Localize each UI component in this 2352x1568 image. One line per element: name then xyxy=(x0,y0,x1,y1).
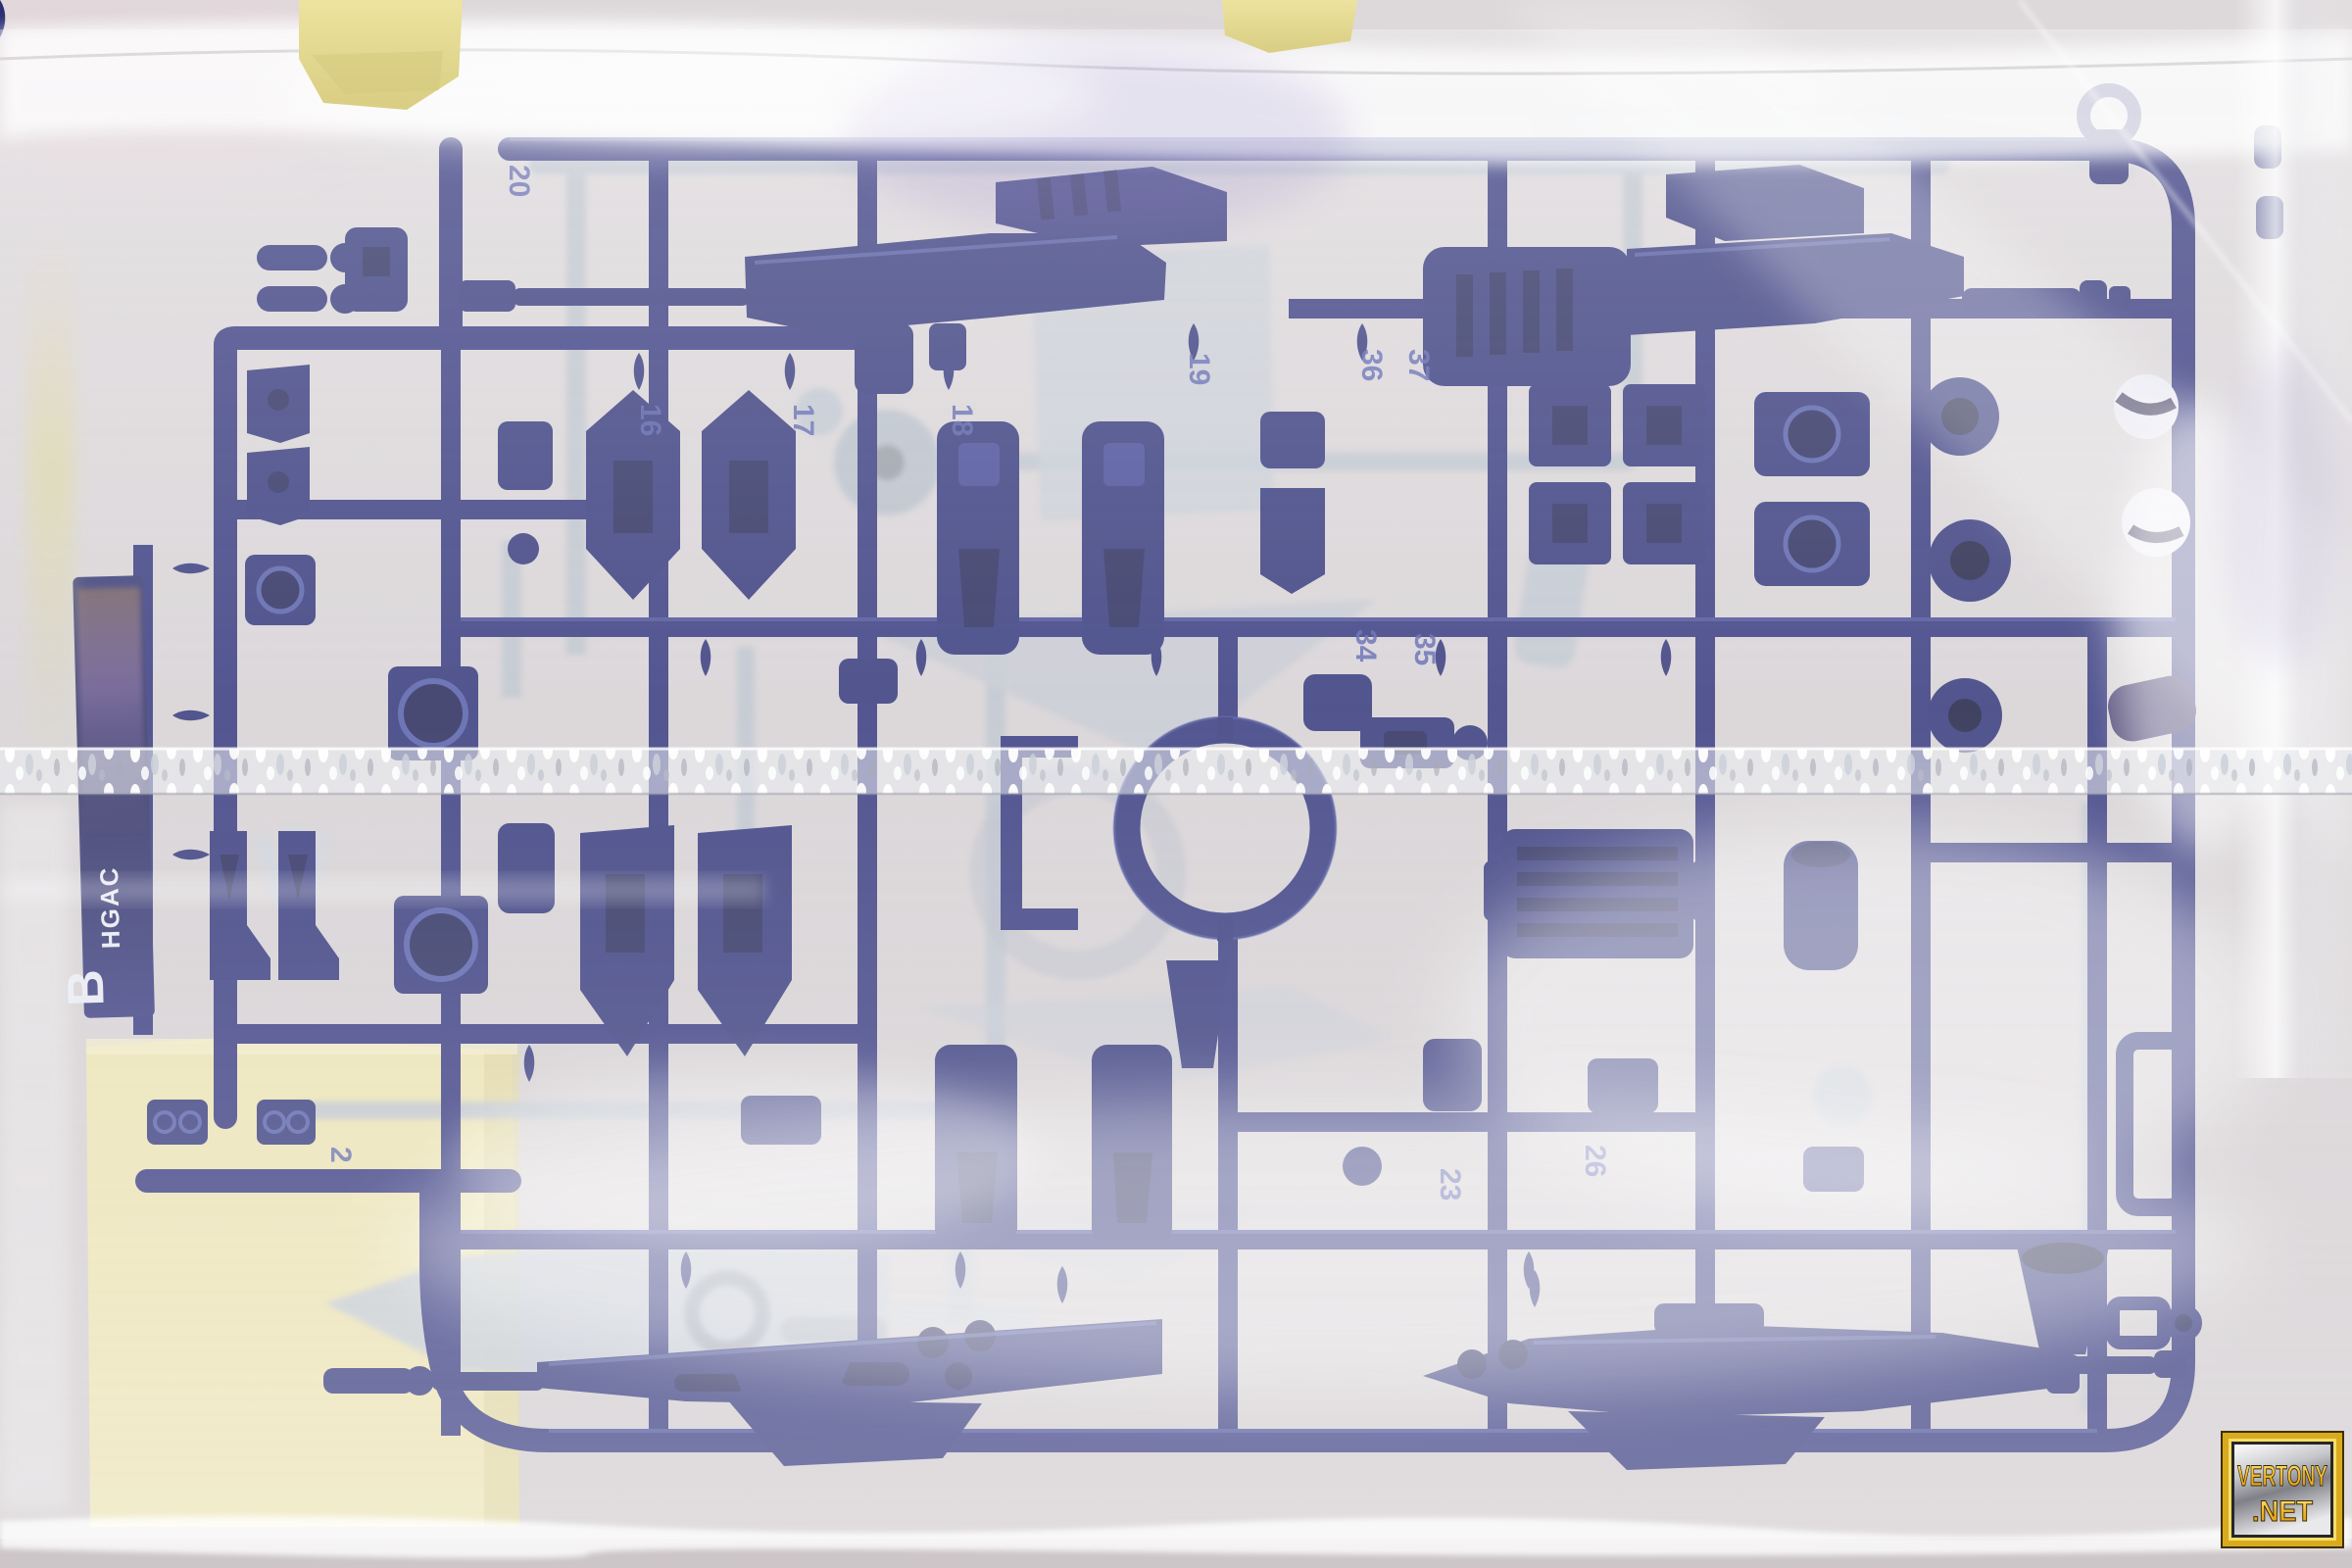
watermark-line1: VERTONY xyxy=(2237,1460,2327,1493)
watermark: VERTONY .NET xyxy=(2221,1431,2344,1548)
watermark-line2: .NET xyxy=(2252,1495,2313,1528)
photo-canvas: 20 16 17 18 19 36 37 34 35 2 26 23 HGAC … xyxy=(0,0,2352,1568)
photo-model-kit-runner-in-bag: 20 16 17 18 19 36 37 34 35 2 26 23 HGAC … xyxy=(0,0,2352,1568)
bag-left-streak xyxy=(27,235,74,804)
plastic-bag xyxy=(0,0,2352,1558)
